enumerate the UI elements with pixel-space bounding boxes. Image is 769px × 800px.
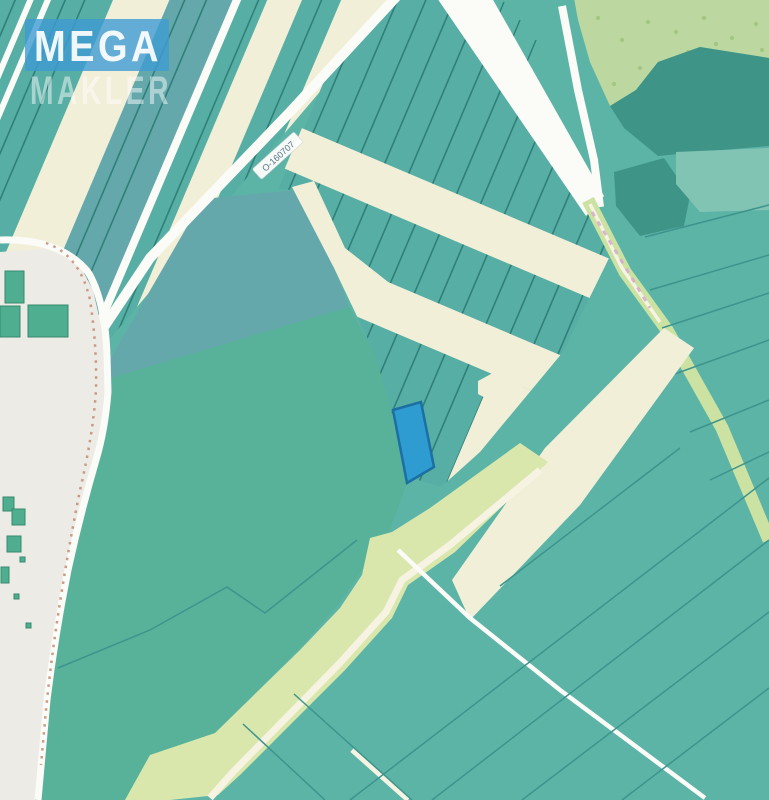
- building: [26, 623, 31, 628]
- building: [12, 509, 25, 525]
- building: [5, 271, 24, 303]
- building: [7, 536, 21, 552]
- building: [0, 306, 20, 337]
- watermark: MEGA MAKLER: [25, 19, 172, 113]
- map-viewport[interactable]: О-160707: [0, 0, 769, 800]
- building: [20, 557, 25, 562]
- watermark-line2: MAKLER: [30, 69, 172, 113]
- parcel-map-canvas[interactable]: О-160707: [0, 0, 769, 800]
- watermark-line1: MEGA: [34, 22, 162, 71]
- building: [28, 305, 68, 337]
- building: [1, 567, 9, 583]
- building: [14, 594, 19, 599]
